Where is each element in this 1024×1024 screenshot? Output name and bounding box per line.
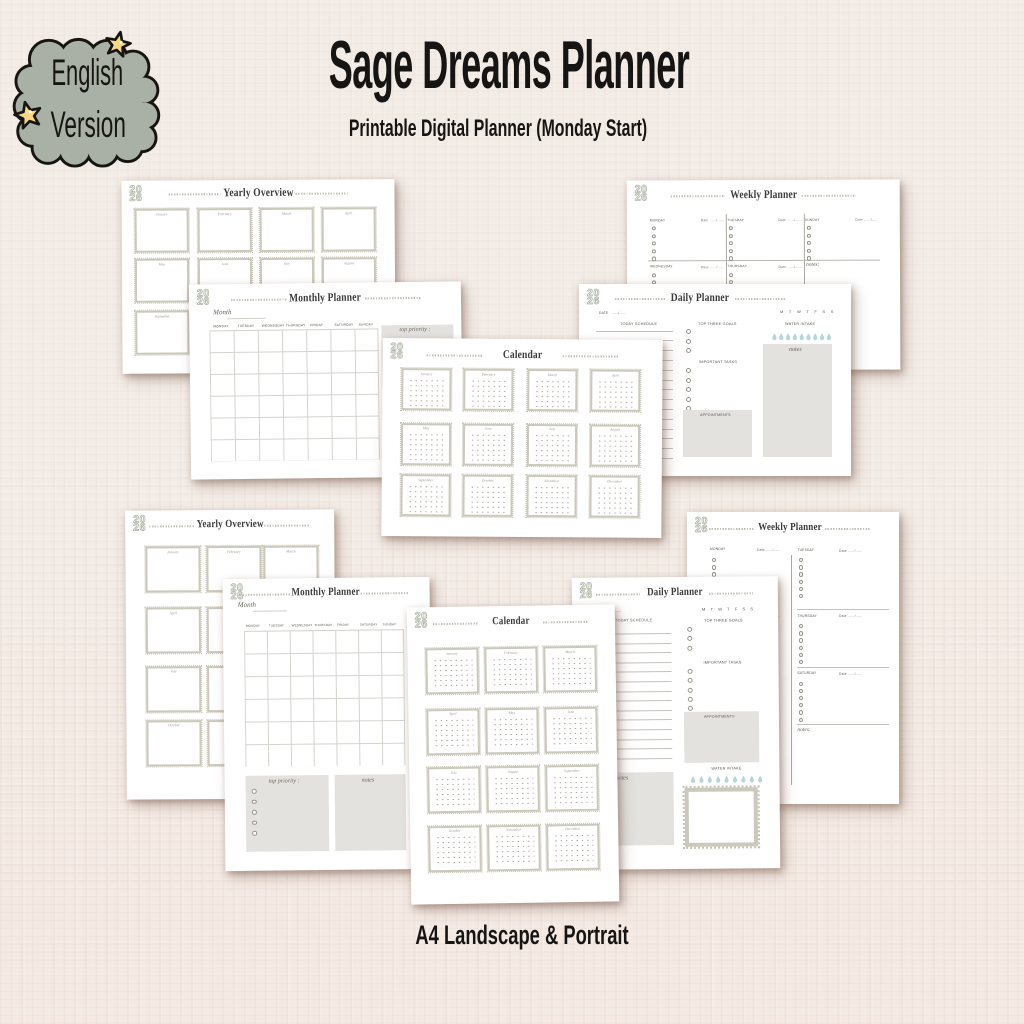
svg-text:English: English <box>51 52 123 93</box>
svg-text:Version: Version <box>51 104 126 145</box>
